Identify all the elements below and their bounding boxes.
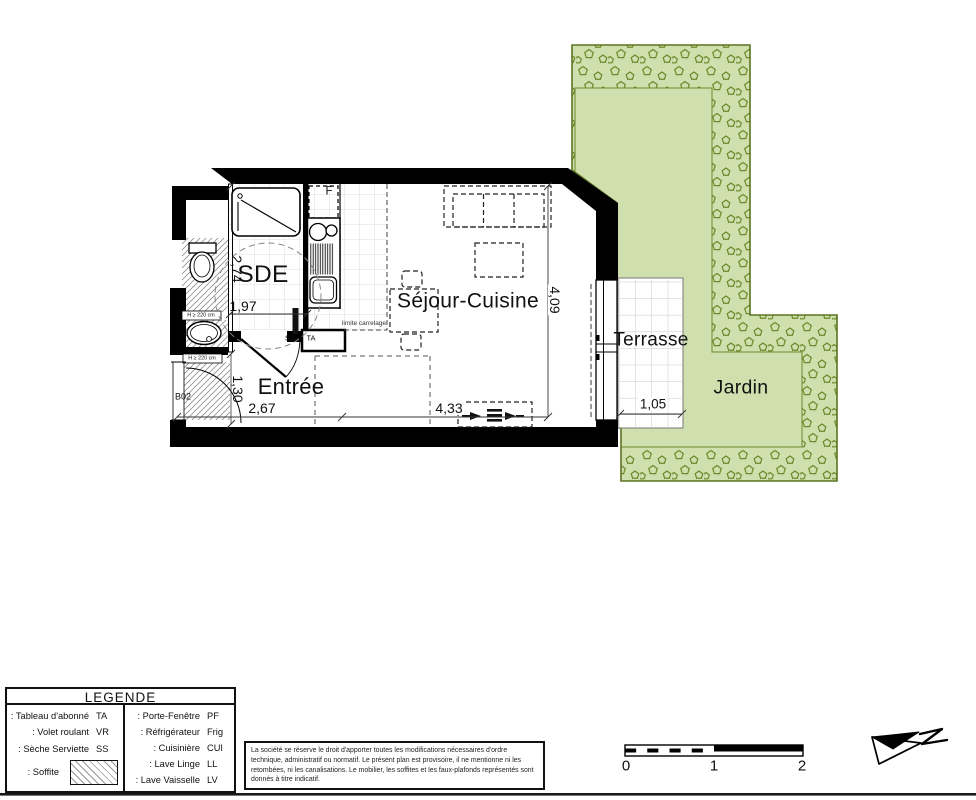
scale-bar	[625, 745, 803, 756]
room-label-terrasse: Terrasse	[613, 331, 688, 350]
ta-panel-label: TA	[306, 334, 315, 342]
sheet-bottom-rule	[0, 793, 976, 796]
toilet	[189, 243, 216, 282]
legend-item-soffite: : Soffite	[7, 760, 123, 785]
dim-197: 1,97	[229, 299, 256, 313]
towel-dryer	[293, 308, 299, 334]
legend-item-seche-serviette: : Sèche Serviette SS	[7, 744, 123, 754]
legend-left-column: : Tableau d'abonné TA : Volet roulant VR…	[7, 705, 125, 791]
tile-limit-label: limite carrelage	[342, 321, 386, 328]
window-handle-bottom	[597, 354, 600, 360]
drainer	[310, 244, 334, 275]
radiator-symbols	[462, 409, 524, 422]
sofa-outline	[444, 186, 551, 227]
legend-item-porte-fenetre: : Porte-Fenêtre PF	[125, 711, 234, 721]
fridge-label: F	[325, 186, 332, 198]
chair-top	[402, 271, 422, 287]
wall-top-left	[172, 186, 228, 240]
door-code-label: B02	[175, 393, 191, 402]
floor-plan-sheet: SDE Entrée Séjour-Cuisine Terrasse Jardi…	[0, 0, 976, 800]
sofa-seat	[453, 194, 544, 227]
legend-item-lave-vaisselle: : Lave Vaisselle LV	[125, 775, 234, 785]
disclaimer-box: La société se réserve le droit d'apporte…	[244, 741, 545, 790]
height-note-2: H ≥ 220 cm	[188, 356, 216, 361]
room-label-sde: SDE	[237, 263, 288, 288]
north-arrow-icon	[872, 729, 947, 764]
room-label-entree: Entrée	[258, 376, 325, 398]
legend-right-column: : Porte-Fenêtre PF : Réfrigérateur Frig …	[125, 705, 234, 791]
legend-item-lave-linge: : Lave Linge LL	[125, 759, 234, 769]
height-note-1: H ≥ 220 cm	[187, 313, 215, 318]
dim-130: 1,30	[231, 375, 245, 402]
towel-dryer-label: SS	[285, 334, 295, 342]
legend-item-cuisiniere: : Cuisinière CUI	[125, 743, 234, 753]
kitchen-unit	[308, 218, 341, 308]
side-table	[475, 243, 523, 277]
north-letter	[920, 729, 947, 744]
soffite-hatch-swatch	[70, 760, 118, 785]
legend-title: LEGENDE	[7, 689, 234, 705]
wall-bottom	[170, 420, 618, 447]
dim-267: 2,67	[246, 401, 277, 415]
dim-409: 4,09	[548, 284, 562, 315]
cooktop-burner-large	[310, 224, 327, 241]
window-handle-top	[597, 335, 600, 341]
dim-274: 2,74	[230, 255, 244, 282]
legend-item-tableau-abonne: : Tableau d'abonné TA	[7, 711, 123, 721]
legend-item-refrigerateur: : Réfrigérateur Frig	[125, 727, 234, 737]
scale-tick-0: 0	[622, 759, 630, 774]
scale-tick-1: 1	[710, 759, 718, 774]
chair-bottom	[401, 334, 421, 350]
legend-box: LEGENDE : Tableau d'abonné TA : Volet ro…	[5, 687, 236, 793]
room-label-jardin: Jardin	[714, 378, 769, 398]
dim-105: 1,05	[638, 397, 668, 411]
shower-tray	[232, 188, 300, 236]
entree-zone-dashed	[315, 356, 430, 424]
cooktop-burner-small	[326, 225, 337, 236]
washbasin	[187, 322, 221, 345]
scale-tick-2: 2	[798, 759, 806, 774]
floor-plan-canvas	[0, 0, 976, 800]
legend-item-volet-roulant: : Volet roulant VR	[7, 727, 123, 737]
dim-433: 4,33	[433, 401, 464, 415]
room-label-sejour-cuisine: Séjour-Cuisine	[397, 291, 539, 312]
